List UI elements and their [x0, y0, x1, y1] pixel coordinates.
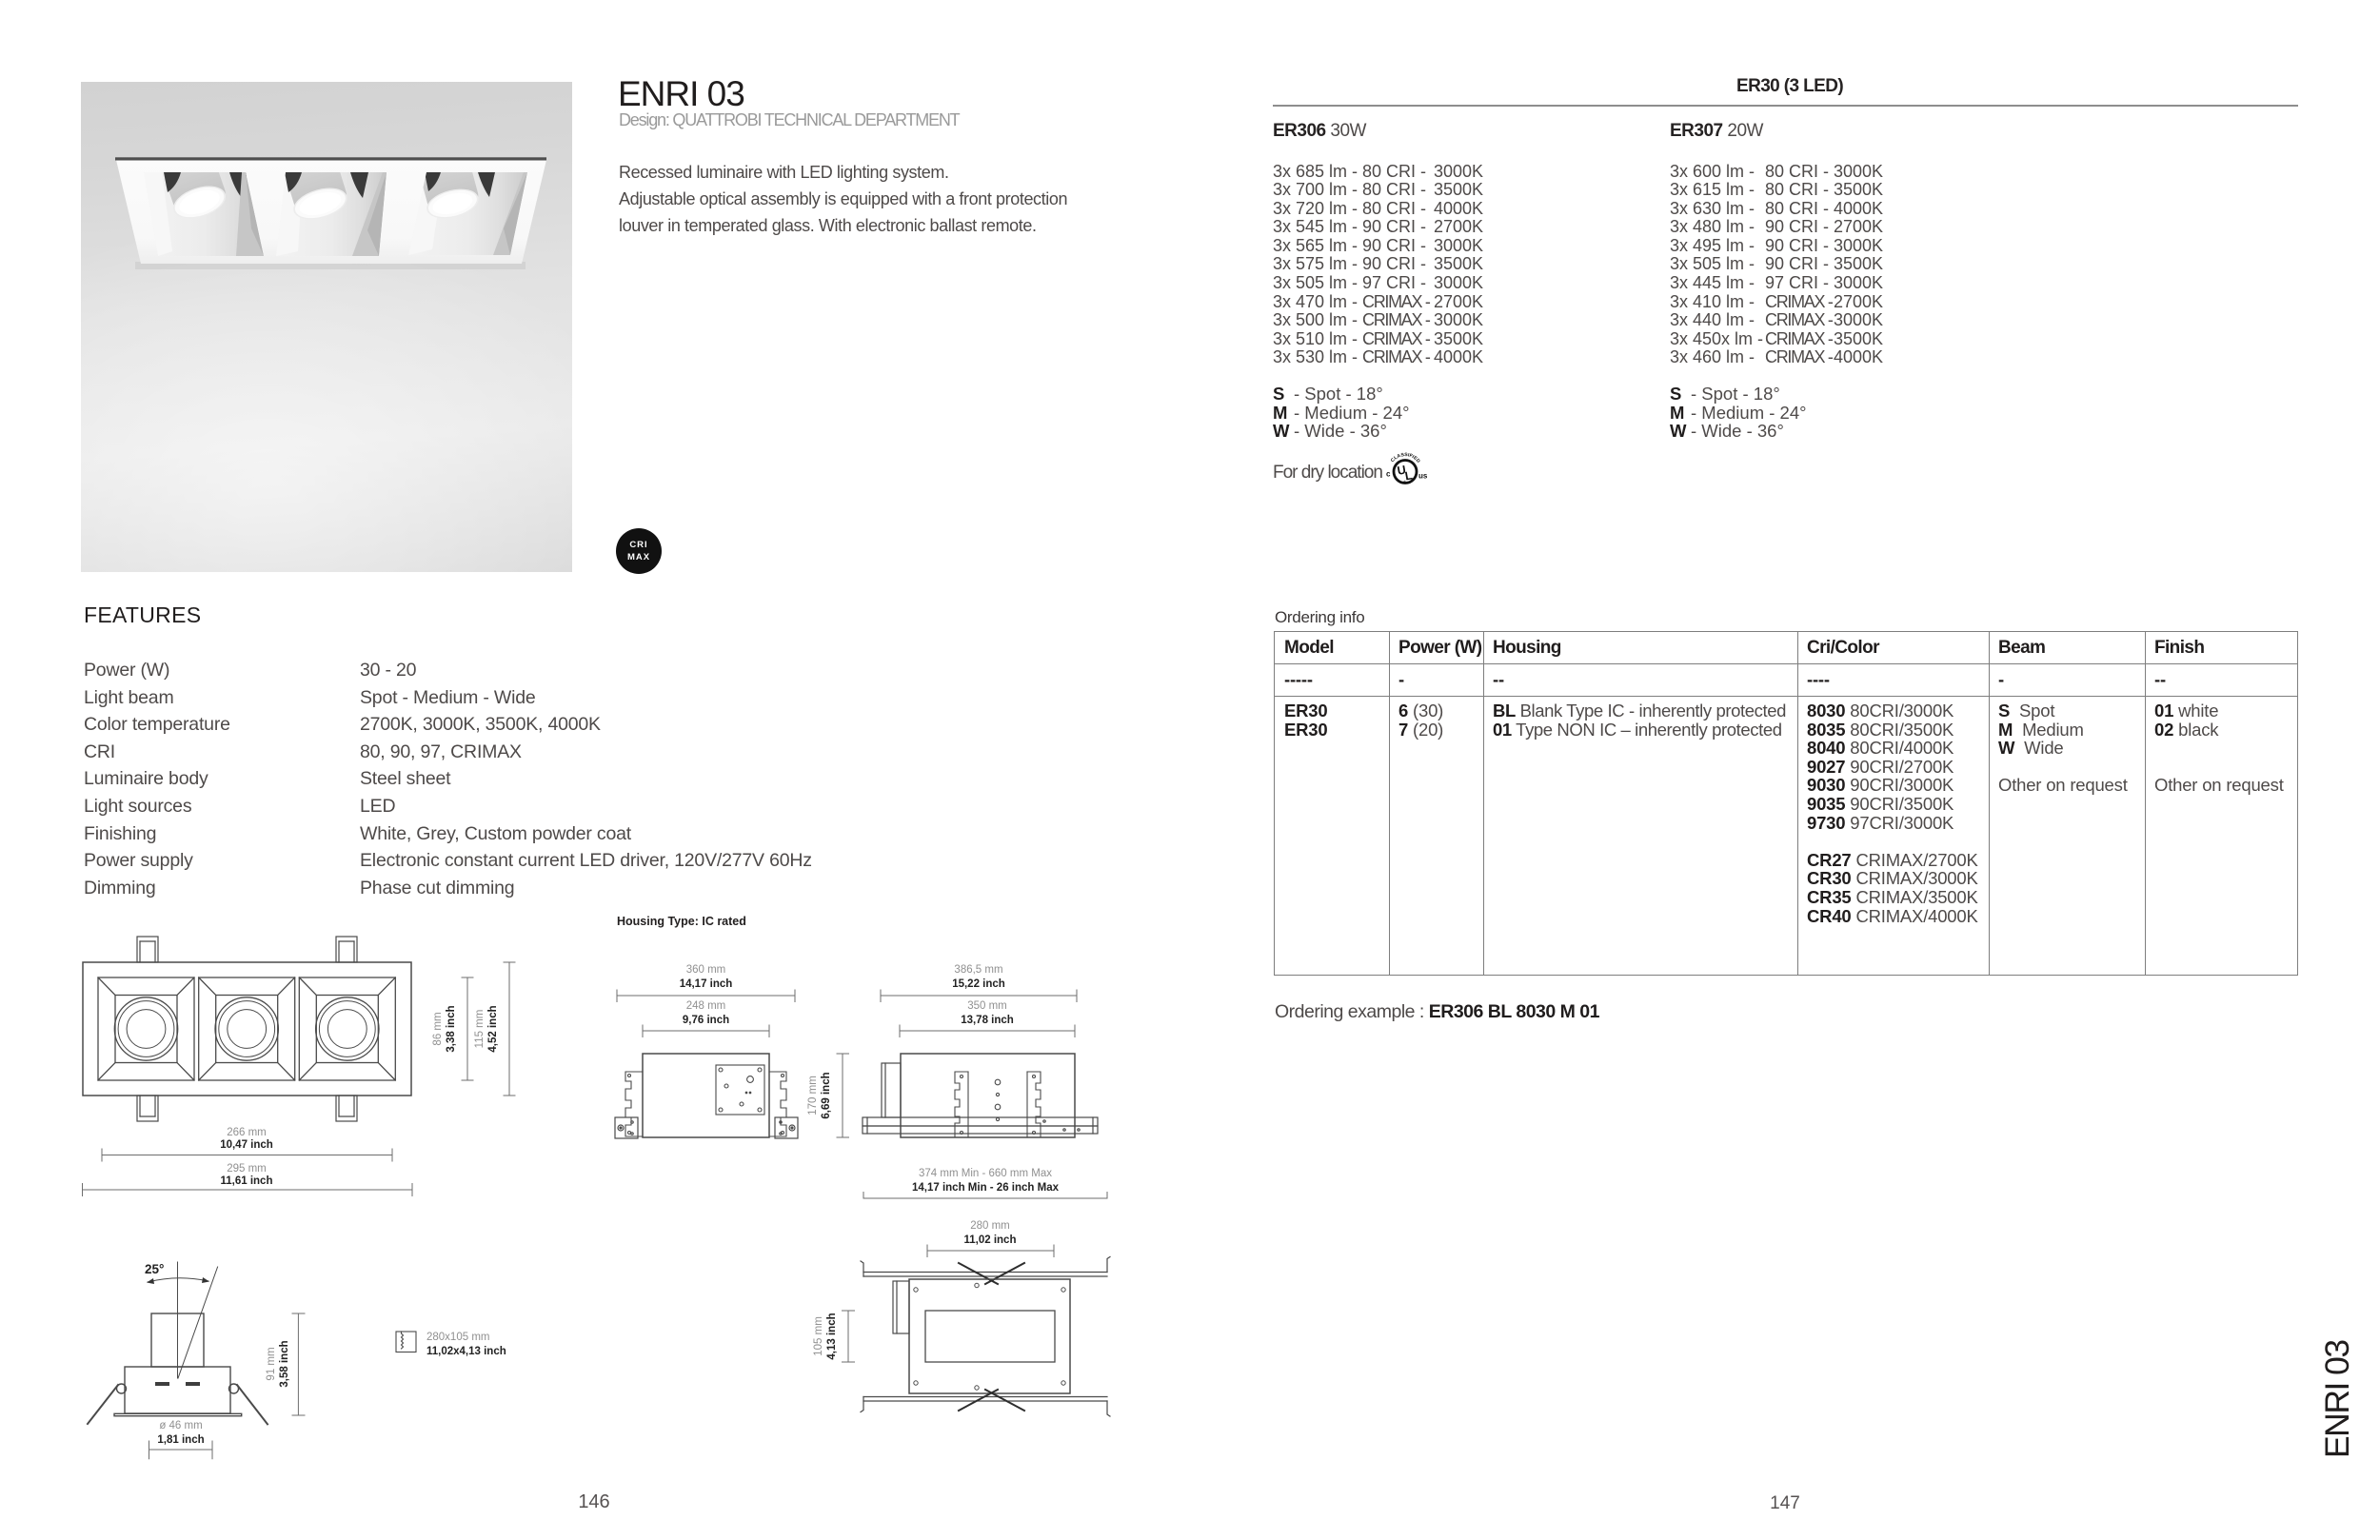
svg-text:6,69 inch: 6,69 inch — [821, 1072, 832, 1118]
svg-text:15,22 inch: 15,22 inch — [952, 978, 1005, 990]
svg-text:280 mm: 280 mm — [970, 1220, 1010, 1232]
svg-text:295 mm: 295 mm — [227, 1163, 267, 1175]
svg-text:386,5 mm: 386,5 mm — [954, 964, 1002, 976]
svg-text:3,58 inch: 3,58 inch — [279, 1340, 290, 1387]
svg-text:11,02x4,13 inch: 11,02x4,13 inch — [426, 1346, 506, 1357]
svg-text:374 mm Min - 660 mm Max: 374 mm Min - 660 mm Max — [919, 1168, 1052, 1179]
svg-text:105 mm: 105 mm — [813, 1316, 824, 1356]
svg-text:3,38 inch: 3,38 inch — [446, 1005, 457, 1052]
svg-text:1,81 inch: 1,81 inch — [157, 1434, 204, 1446]
svg-text:13,78 inch: 13,78 inch — [961, 1015, 1014, 1026]
svg-text:ø 46 mm: ø 46 mm — [159, 1420, 202, 1431]
svg-text:14,17 inch Min - 26 inch Max: 14,17 inch Min - 26 inch Max — [912, 1182, 1060, 1194]
svg-text:9,76 inch: 9,76 inch — [683, 1015, 729, 1026]
svg-text:10,47 inch: 10,47 inch — [220, 1139, 273, 1151]
svg-text:360 mm: 360 mm — [686, 964, 726, 976]
svg-text:280x105 mm: 280x105 mm — [426, 1332, 489, 1343]
svg-text:11,61 inch: 11,61 inch — [221, 1175, 273, 1187]
svg-text:14,17 inch: 14,17 inch — [680, 978, 733, 990]
svg-text:170 mm: 170 mm — [807, 1076, 819, 1116]
svg-text:11,02 inch: 11,02 inch — [964, 1234, 1017, 1246]
svg-text:c: c — [1386, 470, 1391, 479]
svg-text:4,13 inch: 4,13 inch — [826, 1313, 838, 1359]
svg-text:86 mm: 86 mm — [432, 1012, 444, 1045]
svg-text:350 mm: 350 mm — [967, 1000, 1007, 1012]
svg-text:248 mm: 248 mm — [686, 1000, 726, 1012]
svg-text:4,52 inch: 4,52 inch — [487, 1005, 499, 1052]
svg-text:91 mm: 91 mm — [266, 1347, 277, 1380]
svg-text:25°: 25° — [145, 1262, 164, 1276]
svg-text:115 mm: 115 mm — [474, 1010, 486, 1049]
svg-text:266 mm: 266 mm — [227, 1127, 267, 1138]
svg-text:us: us — [1418, 472, 1428, 481]
